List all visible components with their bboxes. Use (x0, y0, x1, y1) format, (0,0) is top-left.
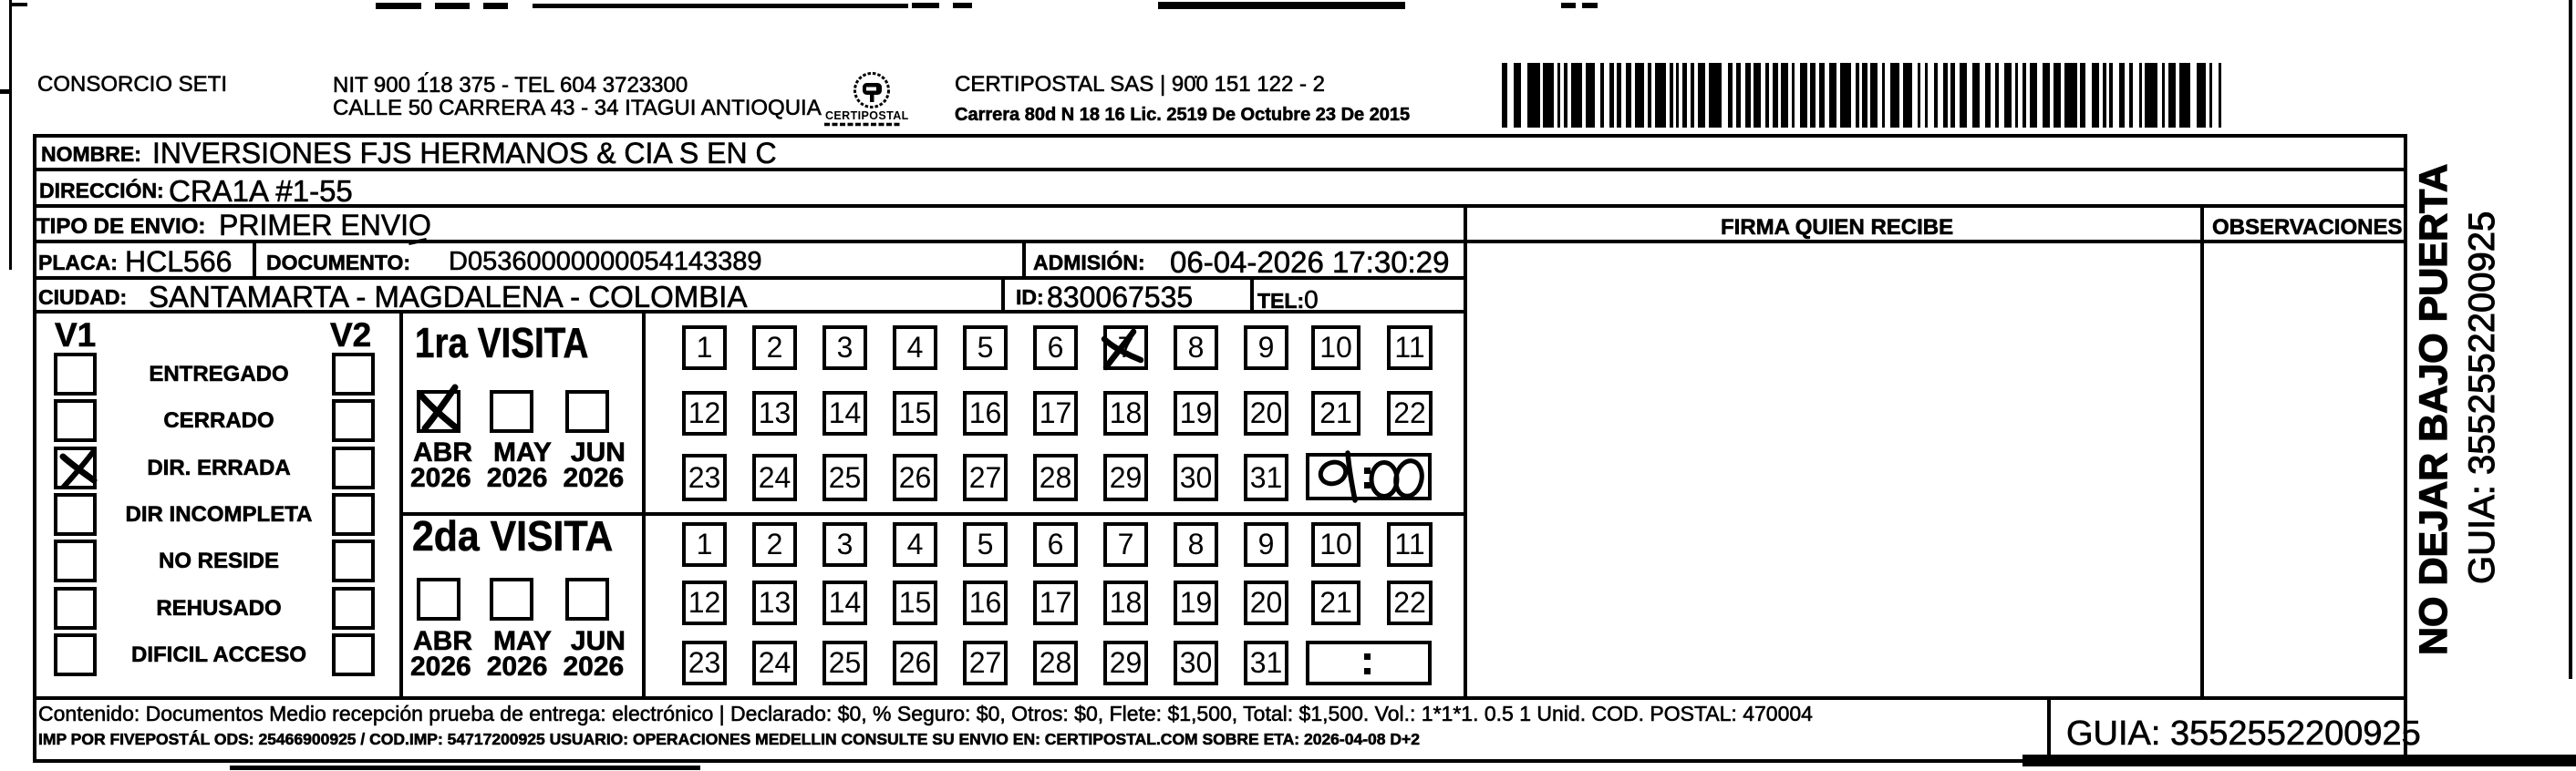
svg-text:CERTIPOSTAL: CERTIPOSTAL (825, 109, 909, 122)
